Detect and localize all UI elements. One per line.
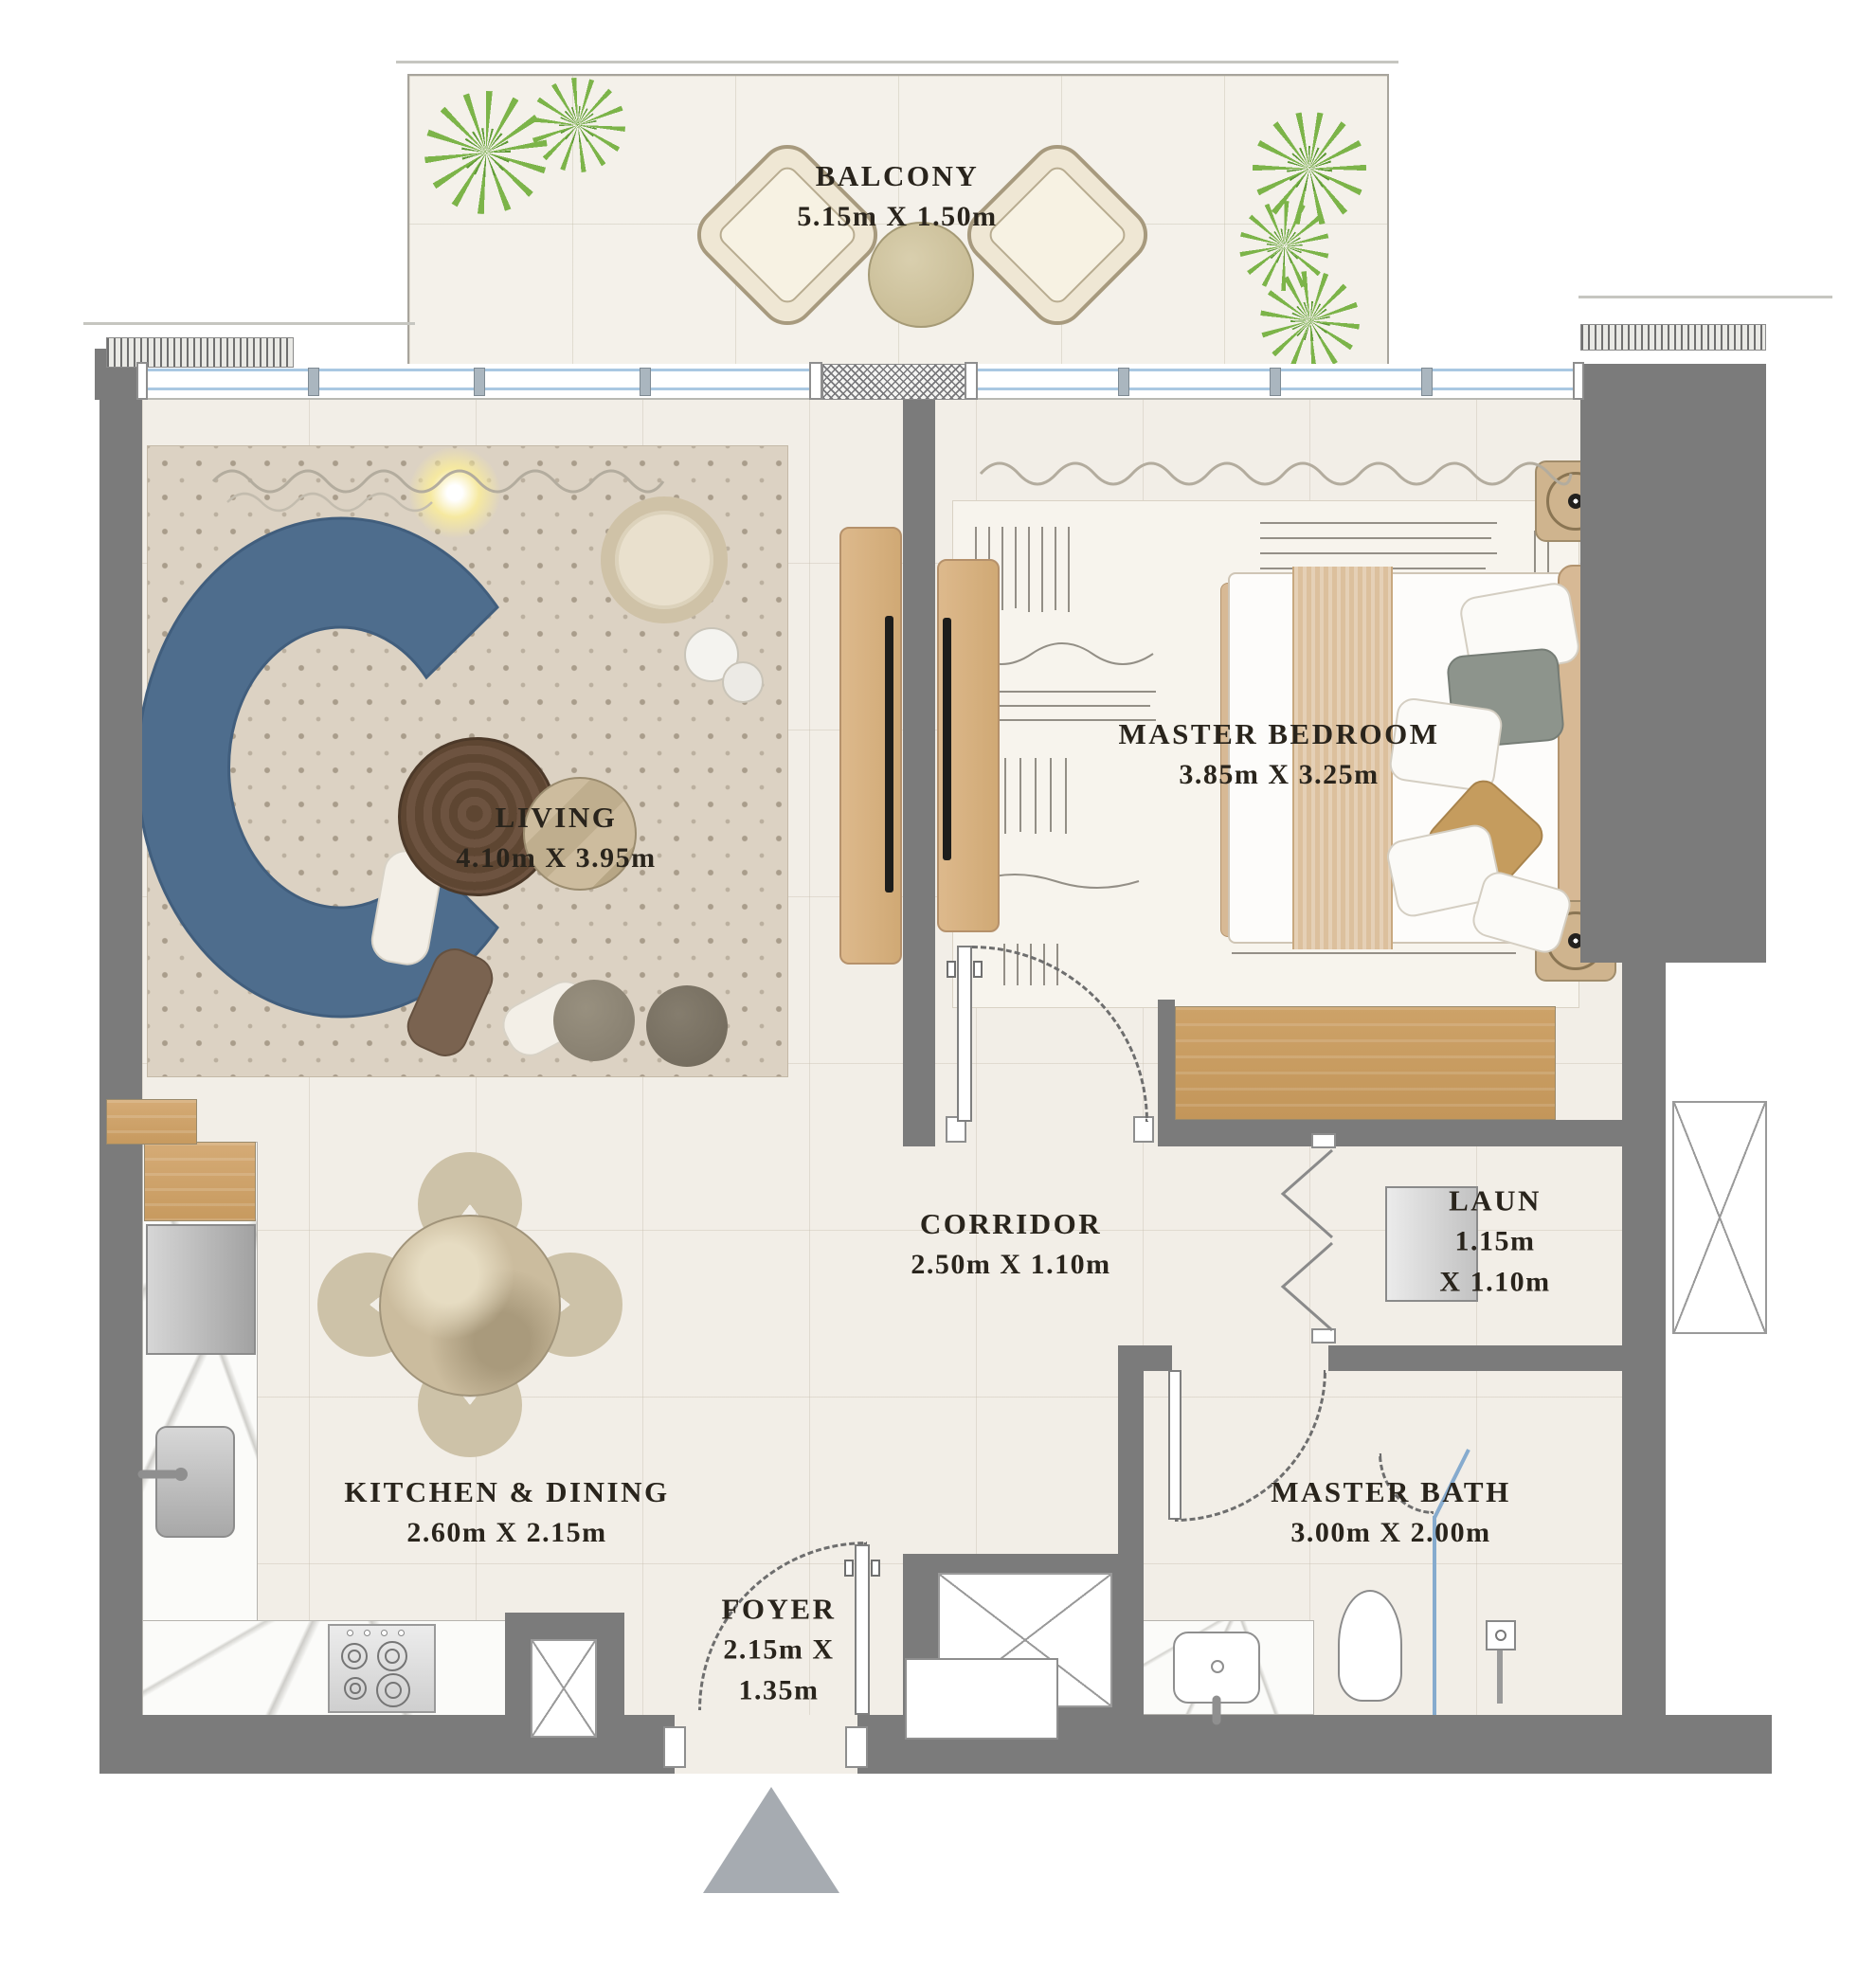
neighbor-wall-line-right [1578, 296, 1832, 298]
window-mullion [474, 368, 485, 396]
room-dims: 4.10m X 3.95m [456, 838, 656, 878]
fridge-icon [146, 1224, 256, 1355]
shaft-xbox-kitchen [531, 1639, 597, 1738]
door-handle [871, 1560, 880, 1577]
stove-knob [381, 1630, 388, 1636]
room-dims: 2.50m X 1.10m [911, 1244, 1110, 1285]
balcony-door-threshold [822, 364, 968, 400]
room-dims: 3.00m X 2.00m [1271, 1512, 1510, 1553]
balcony-edge-line [396, 61, 1398, 63]
kitchen-cabinet-return [106, 1099, 197, 1145]
window-mullion [1118, 368, 1129, 396]
party-wall-hatch-right [1580, 324, 1766, 351]
shower-stem [1497, 1650, 1503, 1704]
room-name: MASTER BEDROOM [1119, 713, 1440, 754]
laundry-door-jamb [1311, 1328, 1336, 1344]
service-box [905, 1658, 1058, 1740]
door-handle [947, 961, 956, 978]
shaft-xbox-right [1672, 1101, 1767, 1334]
corridor-label: CORRIDOR 2.50m X 1.10m [911, 1203, 1110, 1285]
balcony-label: BALCONY 5.15m X 1.50m [797, 155, 997, 237]
wall-left [99, 368, 142, 1774]
window-jamb [809, 362, 822, 400]
entry-arrow-icon [703, 1787, 839, 1893]
kitchen-cabinet [144, 1142, 256, 1221]
stove-knob [398, 1630, 405, 1636]
room-dims: 5.15m X 1.50m [797, 196, 997, 237]
room-dims: 1.15m [1439, 1221, 1550, 1262]
room-dims: 2.60m X 2.15m [344, 1512, 669, 1553]
window-jamb [965, 362, 978, 400]
wall-bath-west [1118, 1345, 1144, 1560]
room-name: LAUN [1439, 1181, 1550, 1221]
armchair-icon [601, 496, 728, 623]
entry-door-jamb [845, 1726, 868, 1768]
room-name: MASTER BATH [1271, 1471, 1510, 1512]
dining-table [379, 1215, 561, 1397]
room-dims: 1.35m [722, 1670, 837, 1711]
master-bedroom-label: MASTER BEDROOM 3.85m X 3.25m [1119, 713, 1440, 795]
wall-top-right-block [1580, 364, 1766, 963]
burner-icon [376, 1673, 410, 1707]
window-mullion [1421, 368, 1433, 396]
floor-lamp-glow [409, 447, 500, 538]
sink-drain [1211, 1660, 1224, 1673]
room-dims: X 1.10m [1439, 1262, 1550, 1303]
kitchen-sink [155, 1426, 235, 1538]
room-name: BALCONY [797, 155, 997, 196]
window-mullion [308, 368, 319, 396]
wardrobe-dresser [1175, 1006, 1556, 1120]
stove-knob [364, 1630, 370, 1636]
room-dims: 2.15m X [722, 1630, 837, 1670]
wall-bath-north-west [1142, 1345, 1172, 1371]
toilet-icon [1338, 1590, 1402, 1702]
neighbor-wall-line-left [83, 322, 415, 325]
room-name: FOYER [722, 1589, 837, 1630]
window-mullion [640, 368, 651, 396]
side-table-smaller [722, 661, 764, 703]
burner-icon [341, 1643, 368, 1669]
plant-icon [424, 91, 548, 214]
master-bath-label: MASTER BATH 3.00m X 2.00m [1271, 1471, 1510, 1553]
wall-bedroom-south [1158, 1120, 1624, 1146]
wall-partition [903, 396, 935, 1146]
window-jamb [136, 362, 148, 400]
room-name: KITCHEN & DINING [344, 1471, 669, 1512]
pouf-icon [646, 985, 728, 1067]
stove-knob [347, 1630, 353, 1636]
laundry-label: LAUN 1.15m X 1.10m [1439, 1181, 1550, 1303]
foyer-label: FOYER 2.15m X 1.35m [722, 1589, 837, 1711]
laundry-door-jamb [1311, 1133, 1336, 1148]
bedroom-door-leaf [957, 946, 972, 1122]
shower-head-nozzle [1495, 1630, 1506, 1641]
entry-door-jamb [663, 1726, 686, 1768]
kitchen-dining-label: KITCHEN & DINING 2.60m X 2.15m [344, 1471, 669, 1553]
room-name: LIVING [456, 797, 656, 838]
room-dims: 3.85m X 3.25m [1119, 754, 1440, 795]
balcony-side-table [868, 222, 974, 328]
entry-threshold-floor [675, 1715, 857, 1774]
lounge-chair-cushion [985, 163, 1130, 308]
burner-icon [377, 1641, 407, 1671]
tv-icon-living [885, 616, 893, 893]
party-wall-hatch-left [106, 337, 294, 368]
wall-bath-north-east [1328, 1345, 1624, 1371]
window-jamb [1573, 362, 1584, 400]
window-mullion [1270, 368, 1281, 396]
tv-icon-bedroom [943, 618, 951, 860]
burner-icon [344, 1677, 367, 1700]
pouf-icon [553, 980, 635, 1061]
living-label: LIVING 4.10m X 3.95m [456, 797, 656, 878]
floor-plan: BALCONY 5.15m X 1.50m LIVING 4.10m X 3.9… [0, 0, 1876, 1984]
room-name: CORRIDOR [911, 1203, 1110, 1244]
